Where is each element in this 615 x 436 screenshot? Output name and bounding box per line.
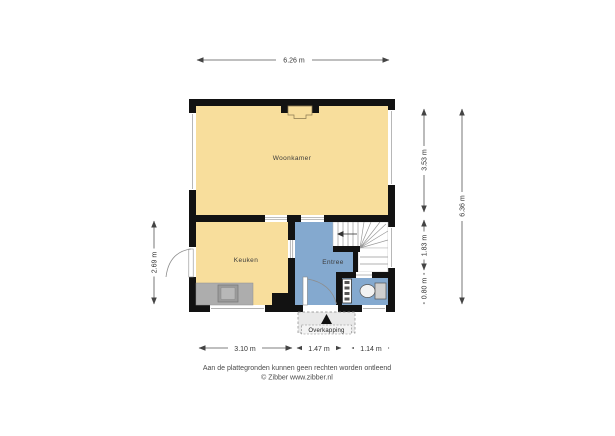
dim-bottom-middle: 1.47 m — [297, 343, 341, 353]
dim-left-kitchen: 2.69 m — [149, 221, 160, 304]
svg-text:3.10 m: 3.10 m — [234, 346, 256, 353]
dim-top-width: 6.26 m — [197, 55, 389, 65]
svg-text:0.80 m: 0.80 m — [422, 278, 429, 300]
dim-right-upper: 3.53 m — [419, 109, 430, 212]
label-woonkamer: Woonkamer — [273, 155, 312, 162]
label-overkapping: Overkapping — [308, 328, 344, 334]
svg-text:1.83 m: 1.83 m — [422, 235, 429, 257]
label-entree: Entree — [322, 259, 344, 266]
svg-text:3.53 m: 3.53 m — [422, 149, 429, 171]
toilet-tank — [375, 283, 386, 299]
toilet-bowl — [360, 285, 375, 298]
floorplan-page: Woonkamer Keuken Entree Overkapping 6.26… — [0, 0, 615, 436]
svg-text:2.69 m: 2.69 m — [152, 252, 159, 274]
svg-text:6.26 m: 6.26 m — [283, 58, 305, 65]
footer-credit: © Zibber www.zibber.nl — [261, 374, 333, 382]
overkapping-area: Overkapping — [298, 312, 355, 334]
svg-text:6.36 m: 6.36 m — [460, 195, 467, 217]
kitchen-counter — [196, 283, 253, 305]
svg-text:1.47 m: 1.47 m — [308, 346, 330, 353]
floorplan-drawing: Woonkamer Keuken Entree Overkapping 6.26… — [0, 0, 615, 436]
footer-disclaimer: Aan de plattegronden kunnen geen rechten… — [203, 365, 391, 372]
dim-right-lower: 0.80 m — [419, 273, 430, 304]
dim-bottom-right: 1.14 m — [352, 343, 389, 353]
dim-right-total: 6.36 m — [457, 109, 468, 304]
kitchen-exterior-door — [166, 247, 196, 277]
dim-right-middle: 1.83 m — [419, 220, 430, 270]
label-keuken: Keuken — [234, 257, 258, 264]
svg-text:1.14 m: 1.14 m — [360, 346, 382, 353]
dim-bottom-left: 3.10 m — [199, 343, 292, 353]
